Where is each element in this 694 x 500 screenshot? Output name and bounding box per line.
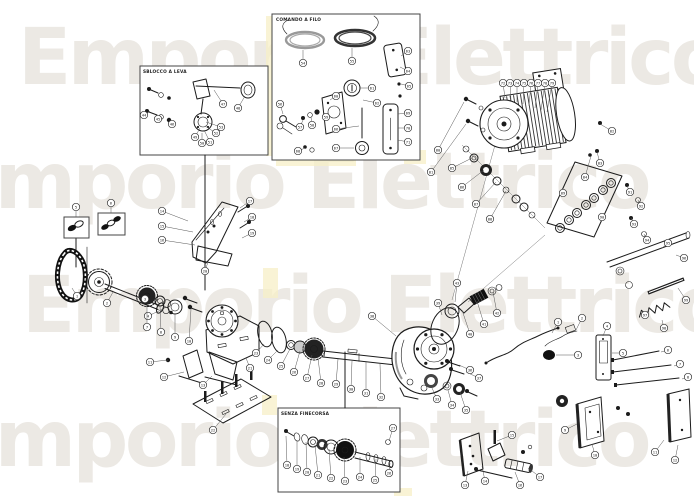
part-balloon-number: 48 xyxy=(236,105,241,110)
part-balloon-number: 26 xyxy=(292,369,297,374)
part-balloon-number: 75 xyxy=(522,80,527,85)
part-balloon-number: 66 xyxy=(334,126,339,131)
part-balloon-number: 34 xyxy=(450,402,455,407)
part-balloon-number: 72 xyxy=(501,80,506,85)
part-balloon-number: 3 xyxy=(577,352,579,357)
part-balloon-number: 88 xyxy=(488,216,493,221)
part-balloon-number: 25 xyxy=(373,477,378,482)
part-balloon-number: 99 xyxy=(684,297,689,302)
part-balloon-number: 83 xyxy=(598,160,603,165)
part-balloon-number: 33 xyxy=(435,396,440,401)
part-balloon-number: 93 xyxy=(632,221,637,226)
watermark-row: Emporio Elettrico xyxy=(22,261,694,351)
capacitor xyxy=(543,350,555,360)
part-balloon-number: 92 xyxy=(639,203,644,208)
part-balloon-number: 54 xyxy=(301,60,306,65)
part-balloon-number: 37 xyxy=(477,375,482,380)
part-balloon-number: 30 xyxy=(349,386,354,391)
part-balloon-number: 19 xyxy=(295,466,300,471)
part-balloon-number: 19 xyxy=(250,230,255,235)
part-balloon-number: 18 xyxy=(250,214,255,219)
part-balloon-number: 89 xyxy=(561,190,566,195)
part-balloon-number: 11 xyxy=(148,359,153,364)
part-balloon-number: 25 xyxy=(279,363,284,368)
bearing-flange xyxy=(206,305,238,337)
part-balloon-number: 97 xyxy=(643,312,648,317)
part-balloon-number: 10 xyxy=(593,452,598,457)
part-balloon-number: 20 xyxy=(203,268,208,273)
part-balloon-number: 40 xyxy=(468,331,473,336)
part-balloon-number: 49 xyxy=(193,134,198,139)
part-balloon-number: 58 xyxy=(310,122,315,127)
part-balloon-number: 95 xyxy=(666,240,671,245)
balloon-leader-line xyxy=(162,240,195,245)
part-balloon-number: 24 xyxy=(358,474,363,479)
part-balloon-number: 80 xyxy=(436,147,441,152)
part-balloon-number: 55 xyxy=(350,58,355,63)
part-balloon-number: 13 xyxy=(201,382,206,387)
part-balloon-number: 41 xyxy=(482,321,487,326)
part-balloon-number: 69 xyxy=(406,110,411,115)
side-cover-plate xyxy=(577,397,604,448)
part-balloon-number: 7 xyxy=(146,324,148,329)
part-balloon-number: 36 xyxy=(468,367,473,372)
part-balloon-number: 22 xyxy=(211,427,216,432)
part-balloon-number: 38 xyxy=(370,313,375,318)
part-balloon-number: 12 xyxy=(162,374,167,379)
inset-label: SENZA FINECORSA xyxy=(281,411,330,417)
part-balloon-number: 10 xyxy=(187,338,192,343)
part-balloon-number: 52 xyxy=(214,130,219,135)
part-balloon-number: 32 xyxy=(379,394,384,399)
part-balloon-number: 63 xyxy=(406,48,411,53)
part-balloon-number: 20 xyxy=(305,469,310,474)
part-balloon-number: 22 xyxy=(329,475,334,480)
part-balloon-number: 81 xyxy=(429,169,434,174)
part-balloon-number: 73 xyxy=(508,80,513,85)
part-balloon-number: 21 xyxy=(248,365,253,370)
part-balloon-number: 71 xyxy=(406,139,411,144)
part-balloon-number: 47 xyxy=(221,101,226,106)
part-balloon-number: 96 xyxy=(682,255,687,260)
part-balloon-number: 57 xyxy=(298,124,303,129)
part-balloon-number: 15 xyxy=(510,432,515,437)
part-balloon-number: 27 xyxy=(391,425,396,430)
part-balloon-number: 86 xyxy=(460,184,465,189)
parts-diagram-page: Emporio Elettrico Emporio Elettrico Empo… xyxy=(0,0,694,500)
part-balloon-number: 70 xyxy=(406,125,411,130)
part-balloon-number: 16 xyxy=(518,482,523,487)
part-balloon-number: 51 xyxy=(208,139,213,144)
part-balloon-number: 90 xyxy=(600,214,605,219)
balloon-leader-line xyxy=(351,361,352,389)
part-balloon-number: 23 xyxy=(254,350,259,355)
part-balloon-number: 98 xyxy=(662,325,667,330)
part-balloon-number: 2 xyxy=(581,315,583,320)
part-balloon-number: 87 xyxy=(474,201,479,206)
part-balloon-number: 62 xyxy=(375,100,380,105)
part-balloon-number: 43 xyxy=(455,280,460,285)
part-balloon-number: 78 xyxy=(543,80,548,85)
part-balloon-number: 2 xyxy=(106,300,108,305)
part-balloon-number: 39 xyxy=(436,300,441,305)
chain-links-box xyxy=(98,213,125,235)
part-balloon-number: 5 xyxy=(75,204,77,209)
part-balloon-number: 27 xyxy=(305,375,310,380)
part-balloon-number: 7 xyxy=(679,361,681,366)
part-balloon-number: 3 xyxy=(144,296,146,301)
part-balloon-number: 5 xyxy=(622,350,624,355)
part-balloon-number: 50 xyxy=(200,140,205,145)
balloon-leader-line xyxy=(380,364,381,397)
part-balloon-number: 21 xyxy=(316,472,321,477)
part-balloon-number: 67 xyxy=(334,145,339,150)
part-balloon-number: 13 xyxy=(463,482,468,487)
part-balloon-number: 42 xyxy=(495,310,500,315)
part-balloon-number: 23 xyxy=(343,478,348,483)
part-balloon-number: 82 xyxy=(610,128,615,133)
part-balloon-number: 46 xyxy=(170,121,175,126)
part-balloon-number: 35 xyxy=(464,407,469,412)
part-balloon-number: 94 xyxy=(645,237,650,242)
inset-label: SBLOCCO A LEVA xyxy=(143,69,187,75)
part-balloon-number: 44 xyxy=(142,112,147,117)
part-balloon-number: 14 xyxy=(160,208,165,213)
inset-no-limit-switch: SENZA FINECORSA xyxy=(278,408,400,492)
part-balloon-number: 68 xyxy=(296,148,301,153)
inset-cable-release: COMANDO A FILO xyxy=(272,14,420,160)
side-cover-plate-2 xyxy=(668,389,691,442)
part-balloon-number: 56 xyxy=(278,101,283,106)
part-balloon-number: 60 xyxy=(334,93,339,98)
part-balloon-number: 29 xyxy=(334,381,339,386)
part-balloon-number: 14 xyxy=(483,478,488,483)
part-balloon-number: 91 xyxy=(628,189,633,194)
part-balloon-number: 76 xyxy=(529,80,534,85)
exploded-parts-diagram: Emporio Elettrico Emporio Elettrico Empo… xyxy=(0,0,694,500)
part-balloon-number: 15 xyxy=(160,223,165,228)
part-balloon-number: 31 xyxy=(364,390,369,395)
part-balloon-number: 17 xyxy=(538,474,543,479)
part-balloon-number: 61 xyxy=(370,85,375,90)
part-balloon-number: 45 xyxy=(156,116,161,121)
part-balloon-number: 12 xyxy=(673,457,678,462)
part-balloon-number: 28 xyxy=(319,380,324,385)
part-balloon-number: 16 xyxy=(160,237,165,242)
part-balloon-number: 24 xyxy=(266,357,271,362)
part-balloon-number: 65 xyxy=(407,83,412,88)
part-balloon-number: 53 xyxy=(219,124,224,129)
part-balloon-number: 84 xyxy=(583,174,588,179)
part-balloon-number: 17 xyxy=(248,198,253,203)
part-balloon-number: 74 xyxy=(515,80,520,85)
part-balloon-number: 77 xyxy=(536,80,541,85)
part-balloon-number: 85 xyxy=(450,165,455,170)
part-balloon-number: 18 xyxy=(285,462,290,467)
part-balloon-number: 26 xyxy=(387,470,392,475)
part-balloon-number: 64 xyxy=(406,68,411,73)
inset-label: COMANDO A FILO xyxy=(276,17,321,23)
part-balloon-number: 59 xyxy=(324,114,329,119)
part-balloon-number: 11 xyxy=(653,449,658,454)
part-balloon-number: 79 xyxy=(550,80,555,85)
main-shaft xyxy=(322,349,399,365)
